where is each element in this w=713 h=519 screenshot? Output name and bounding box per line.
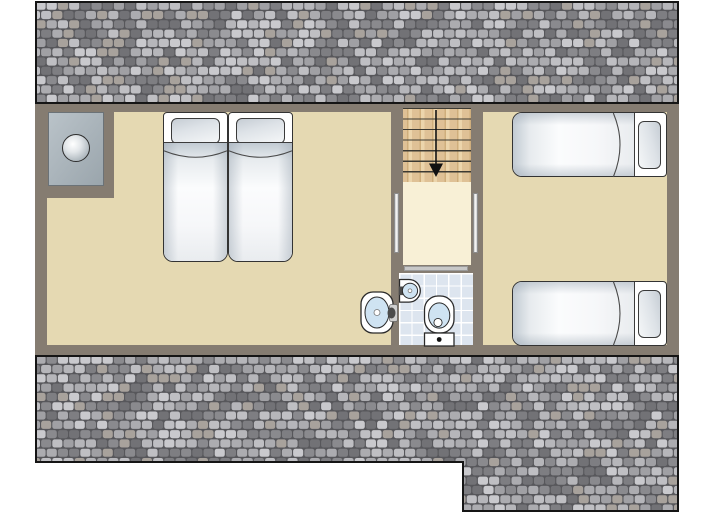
- mattress: [229, 142, 292, 261]
- bathroom-floor-tiles: [399, 273, 473, 345]
- bathroom-door: [404, 266, 468, 271]
- pillow-icon: [171, 118, 220, 144]
- pillow-icon: [638, 290, 661, 338]
- roof-bottom: [35, 355, 679, 512]
- double-bed-right-half: [228, 112, 293, 262]
- single-bed-top: [512, 112, 667, 177]
- roof-top: [35, 1, 679, 104]
- mattress: [513, 113, 635, 176]
- double-bed-left-half: [163, 112, 228, 262]
- staircase: [403, 108, 471, 182]
- mattress: [164, 142, 227, 261]
- mattress: [513, 282, 635, 345]
- utility-unit-knob-icon: [62, 134, 90, 162]
- pillow-icon: [638, 121, 661, 169]
- door-opening-right-bedroom: [473, 193, 478, 253]
- door-opening-left-bedroom: [394, 193, 399, 253]
- landing-floor: [403, 182, 471, 265]
- floor-plan: [0, 0, 713, 519]
- pillow-icon: [236, 118, 285, 144]
- single-bed-bottom: [512, 281, 667, 346]
